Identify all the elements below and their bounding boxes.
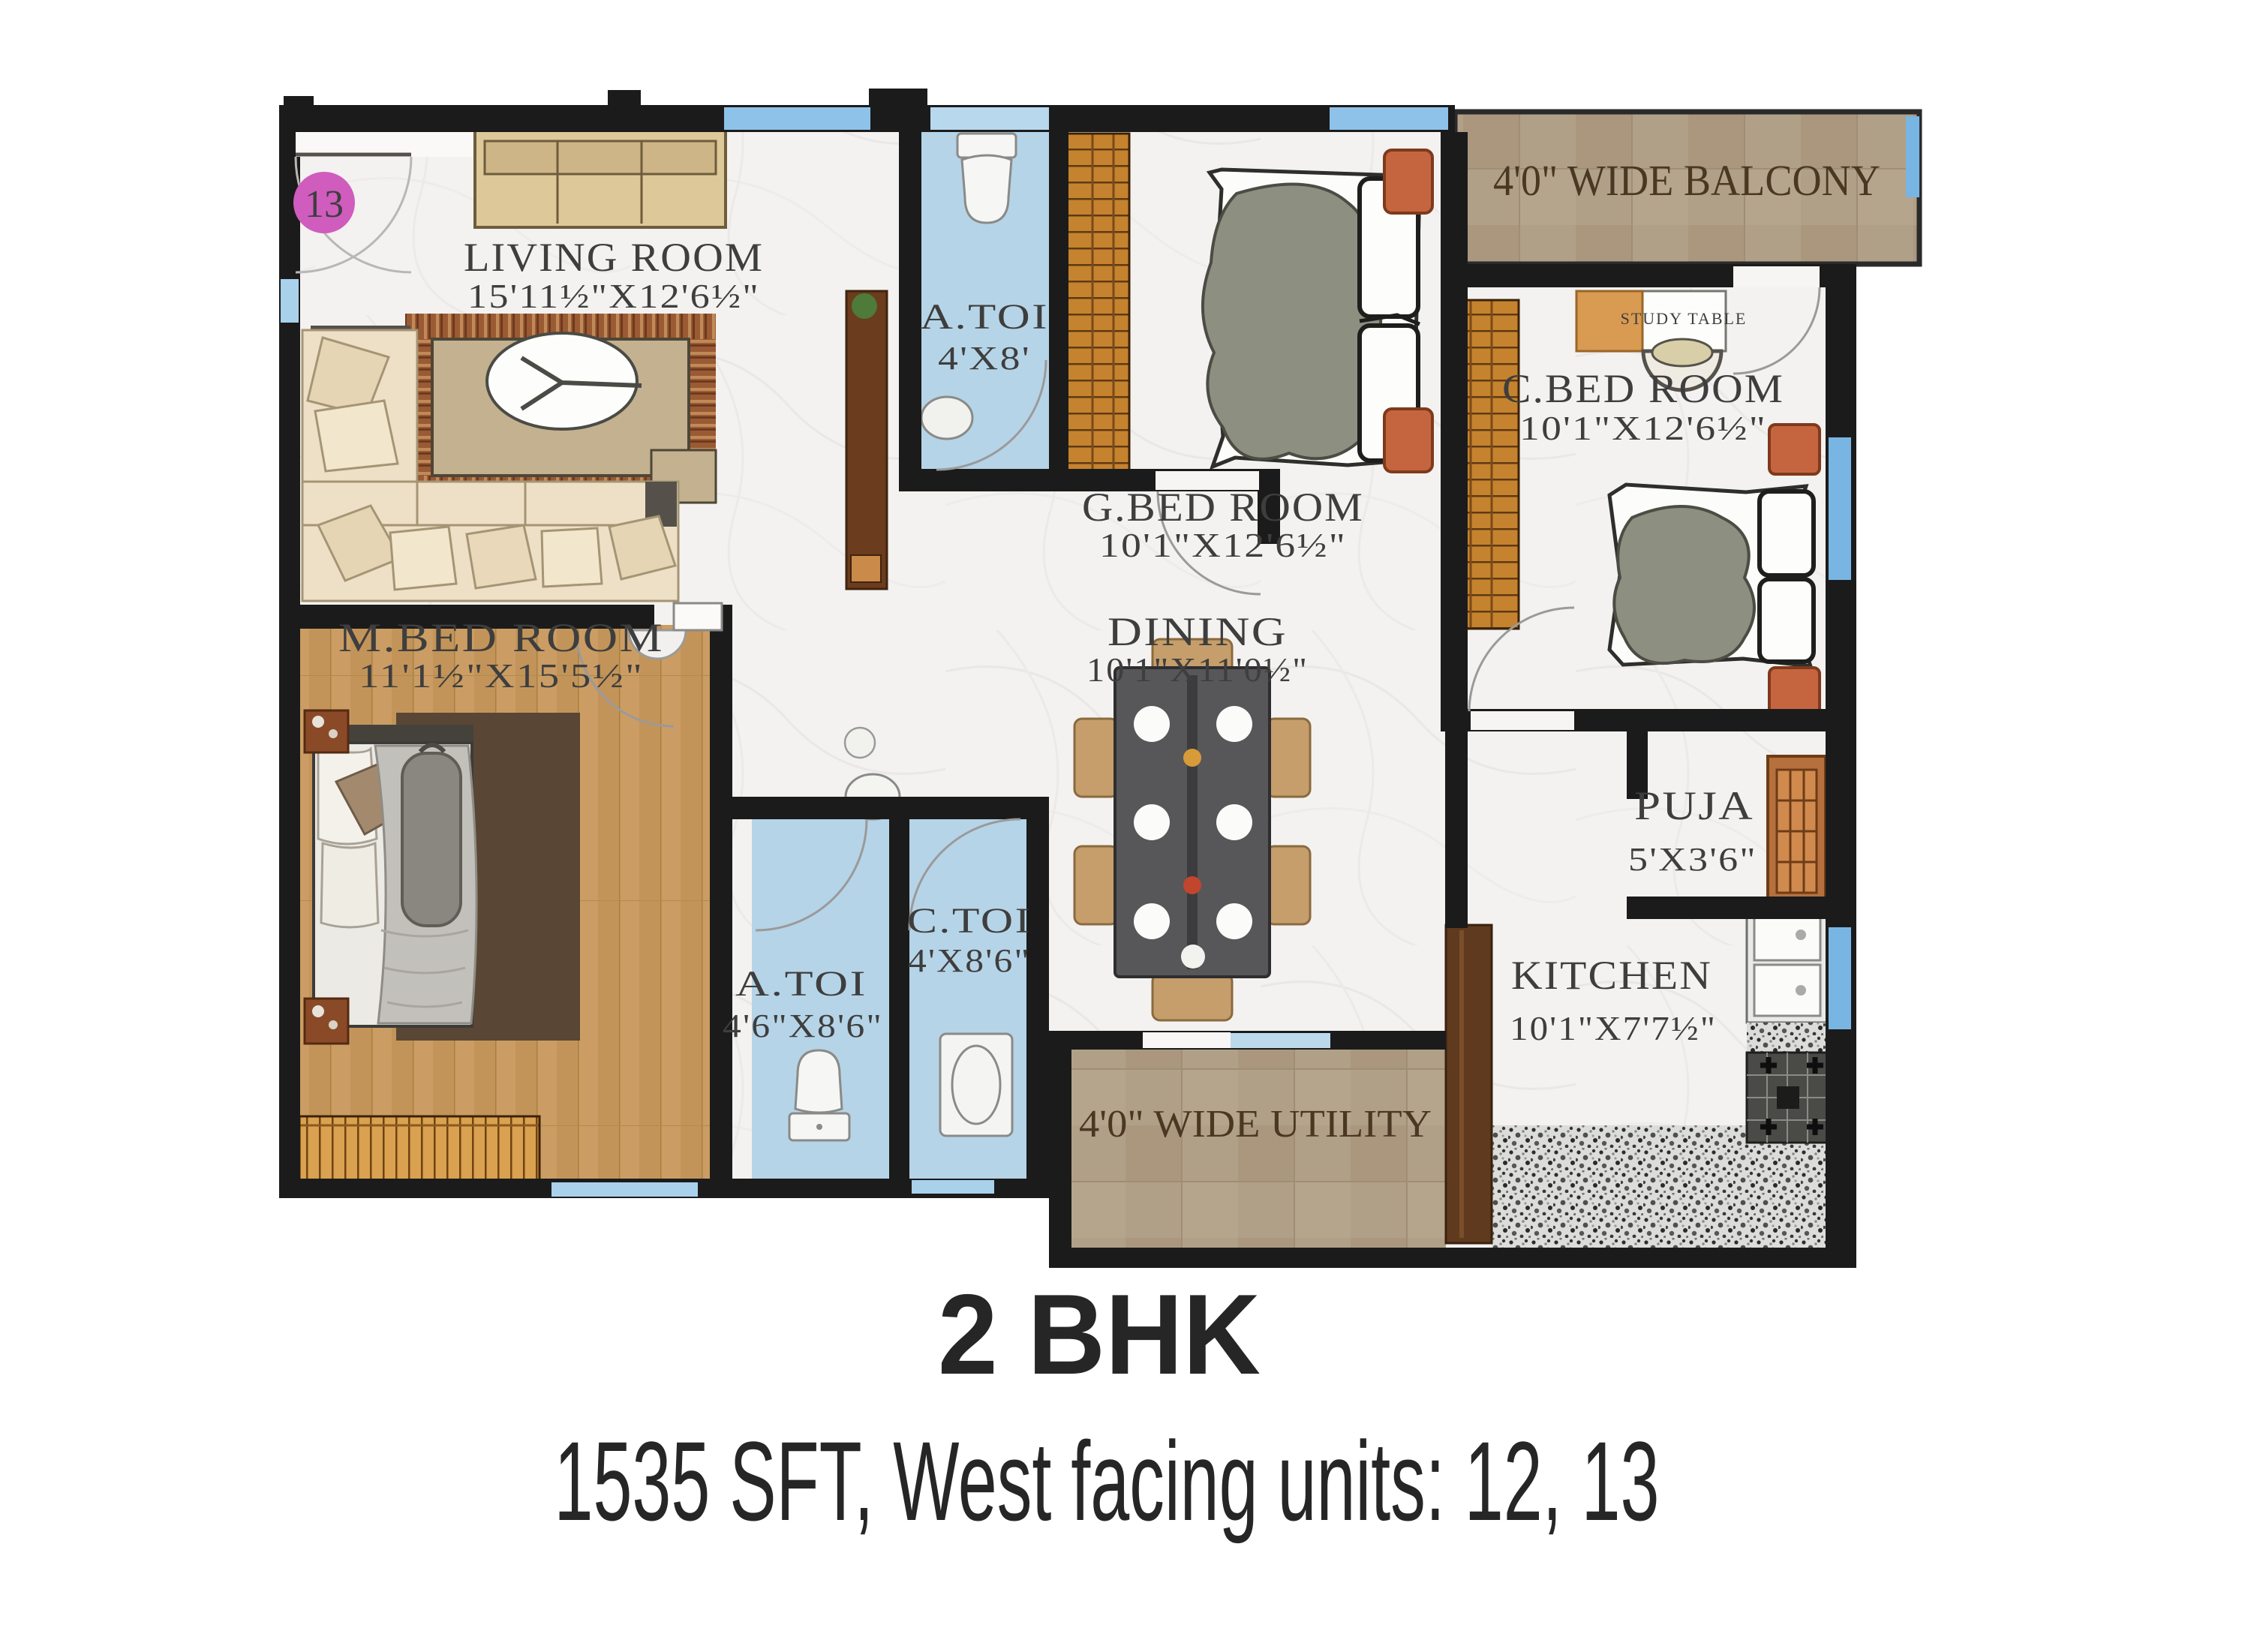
svg-text:C.BED ROOM: C.BED ROOM xyxy=(1502,366,1784,411)
svg-text:10'1"X7'7½": 10'1"X7'7½" xyxy=(1510,1009,1717,1047)
svg-text:KITCHEN: KITCHEN xyxy=(1511,953,1712,998)
svg-text:13: 13 xyxy=(305,183,344,226)
svg-text:11'1½"X15'5½": 11'1½"X15'5½" xyxy=(359,656,644,695)
svg-text:2 BHK: 2 BHK xyxy=(938,1271,1261,1398)
svg-text:4'X8': 4'X8' xyxy=(938,340,1031,377)
svg-text:A.TOI: A.TOI xyxy=(920,297,1049,337)
svg-text:DINING: DINING xyxy=(1107,609,1288,654)
svg-text:LIVING ROOM: LIVING ROOM xyxy=(464,235,764,280)
svg-text:1535 SFT, West facing units: 1: 1535 SFT, West facing units: 12, 13 xyxy=(554,1418,1660,1544)
svg-text:PUJA: PUJA xyxy=(1634,783,1754,828)
svg-text:G.BED ROOM: G.BED ROOM xyxy=(1082,485,1364,530)
svg-text:4'X8'6": 4'X8'6" xyxy=(908,942,1031,979)
svg-text:4'6"X8'6": 4'6"X8'6" xyxy=(723,1008,883,1044)
svg-text:5'X3'6": 5'X3'6" xyxy=(1628,841,1757,878)
svg-text:10'1"X11'0½": 10'1"X11'0½" xyxy=(1086,650,1309,689)
svg-text:C.TOI: C.TOI xyxy=(907,901,1032,941)
svg-text:A.TOI: A.TOI xyxy=(735,964,867,1004)
svg-text:10'1"X12'6½": 10'1"X12'6½" xyxy=(1519,409,1767,447)
svg-text:STUDY TABLE: STUDY TABLE xyxy=(1621,309,1748,328)
svg-text:10'1"X12'6½": 10'1"X12'6½" xyxy=(1099,526,1347,564)
svg-text:4'0" WIDE BALCONY: 4'0" WIDE BALCONY xyxy=(1493,156,1880,205)
svg-text:15'11½"X12'6½": 15'11½"X12'6½" xyxy=(467,277,760,315)
svg-text:4'0" WIDE UTILITY: 4'0" WIDE UTILITY xyxy=(1079,1103,1432,1146)
svg-text:M.BED ROOM: M.BED ROOM xyxy=(338,615,664,660)
